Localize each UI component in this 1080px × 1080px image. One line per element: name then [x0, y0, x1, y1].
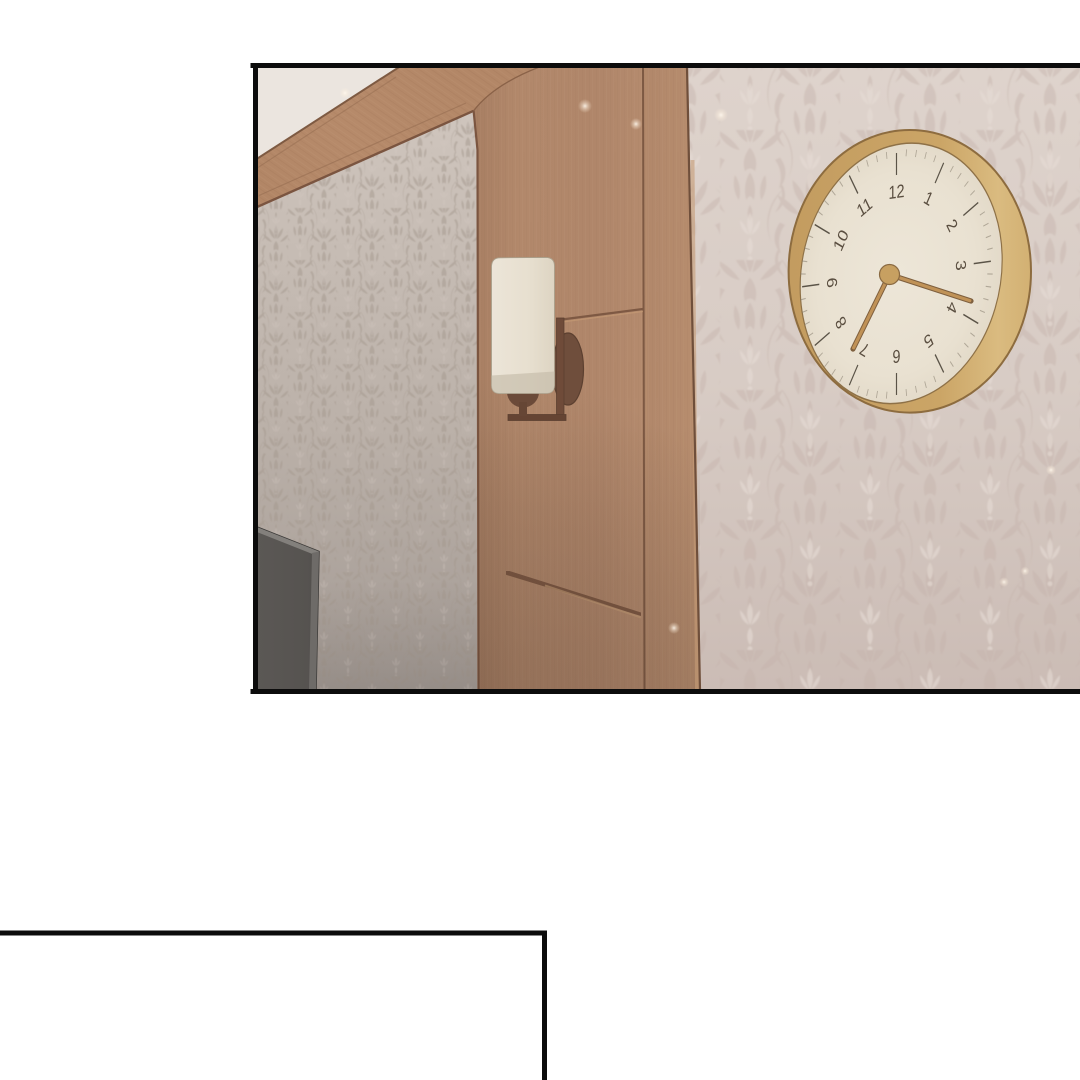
svg-text:12: 12 — [888, 180, 904, 203]
svg-text:6: 6 — [892, 345, 900, 367]
